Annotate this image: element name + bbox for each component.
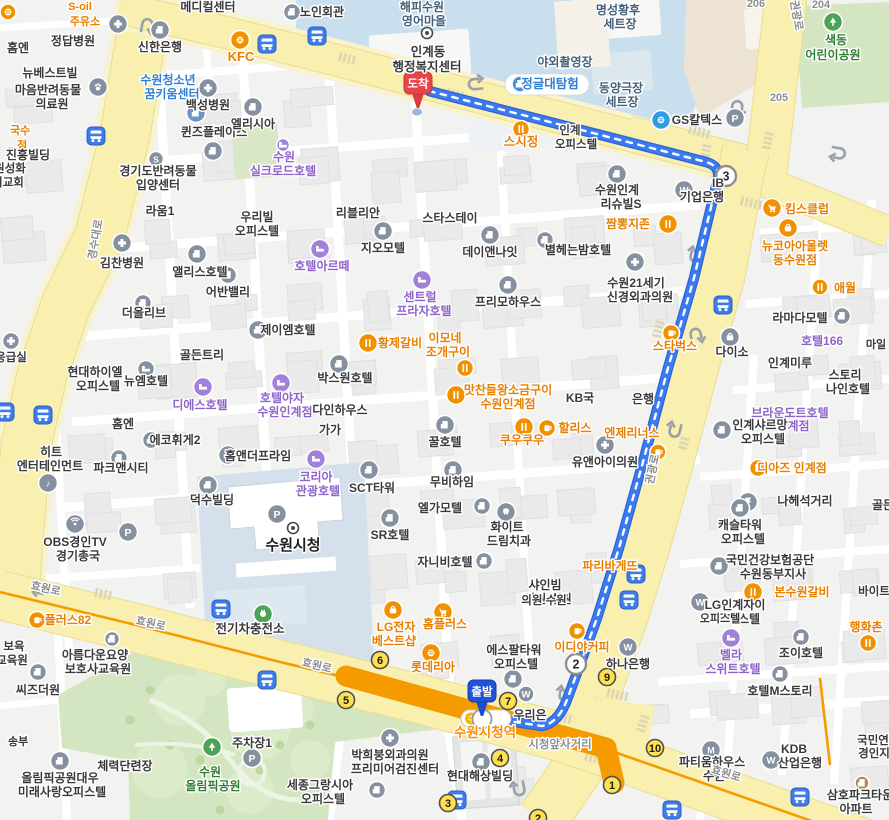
- svg-text:인계샤르망: 인계샤르망: [732, 417, 787, 432]
- svg-text:P: P: [124, 527, 131, 539]
- svg-text:이모네: 이모네: [428, 330, 461, 345]
- svg-text:박스원호텔: 박스원호텔: [317, 370, 372, 385]
- svg-text:엘가모텔: 엘가모텔: [418, 500, 462, 515]
- svg-text:국민연: 국민연: [857, 733, 889, 747]
- svg-text:입양센터: 입양센터: [136, 177, 180, 192]
- svg-text:센트럴: 센트럴: [403, 289, 436, 304]
- svg-text:조개구이: 조개구이: [426, 344, 470, 359]
- svg-text:수원21세기: 수원21세기: [607, 275, 665, 290]
- svg-text:P: P: [731, 113, 738, 125]
- svg-text:라마다모텔: 라마다모텔: [772, 310, 827, 325]
- svg-text:보육: 보육: [3, 640, 25, 653]
- svg-text:황제갈비: 황제갈비: [378, 335, 422, 350]
- svg-text:7: 7: [505, 696, 511, 708]
- svg-text:엘리시아: 엘리시아: [231, 116, 275, 131]
- svg-text:애월: 애월: [834, 280, 856, 295]
- svg-text:할리스: 할리스: [558, 420, 591, 435]
- svg-text:KB국: KB국: [566, 391, 594, 405]
- svg-text:올림픽공원: 올림픽공원: [185, 778, 240, 793]
- svg-text:우리빌: 우리빌: [240, 209, 273, 224]
- svg-text:세트장: 세트장: [605, 94, 638, 109]
- svg-text:홈앤더프라임: 홈앤더프라임: [225, 448, 291, 463]
- svg-text:오피스텔: 오피스텔: [555, 137, 597, 151]
- svg-text:킴스클럽: 킴스클럽: [785, 202, 829, 216]
- svg-text:제이엠호텔: 제이엠호텔: [260, 322, 315, 337]
- svg-text:올림픽공원대우: 올림픽공원대우: [21, 770, 98, 785]
- svg-text:경기도반려동물: 경기도반려동물: [119, 163, 196, 178]
- svg-text:동수원점: 동수원점: [773, 252, 817, 267]
- svg-text:라움1: 라움1: [146, 203, 175, 218]
- svg-text:수원: 수원: [199, 765, 221, 779]
- svg-text:엔제리너스: 엔제리너스: [604, 425, 659, 440]
- svg-text:의료원: 의료원: [35, 96, 68, 111]
- svg-text:4: 4: [497, 753, 504, 765]
- svg-text:W: W: [624, 643, 633, 654]
- svg-text:KDB: KDB: [781, 742, 807, 756]
- svg-text:SCT타워: SCT타워: [349, 480, 395, 495]
- svg-text:다인하우스: 다인하우스: [312, 402, 367, 417]
- svg-text:수원청소년: 수원청소년: [140, 72, 195, 87]
- svg-text:에스팔타워: 에스팔타워: [486, 642, 541, 657]
- svg-text:주차장1: 주차장1: [232, 735, 272, 750]
- svg-text:나인호텔: 나인호텔: [826, 381, 870, 396]
- svg-text:6: 6: [377, 655, 383, 667]
- svg-text:삼호파크타운: 삼호파크타운: [827, 787, 889, 802]
- svg-text:인계미루: 인계미루: [768, 355, 812, 370]
- svg-text:교육원: 교육원: [0, 653, 28, 667]
- svg-text:전기차충전소: 전기차충전소: [215, 621, 285, 636]
- svg-text:진흥빌딩: 진흥빌딩: [6, 147, 50, 162]
- svg-text:오피스텔: 오피스텔: [235, 223, 279, 238]
- svg-text:파크앤시티: 파크앤시티: [93, 460, 148, 475]
- svg-text:미래사랑오피스텔: 미래사랑오피스텔: [18, 784, 106, 799]
- svg-text:프라자호텔: 프라자호텔: [396, 303, 451, 318]
- svg-text:히트: 히트: [40, 444, 62, 459]
- svg-text:덕수빌딩: 덕수빌딩: [190, 492, 234, 507]
- svg-text:마음반려동물: 마음반려동물: [15, 82, 81, 97]
- svg-text:캐슬타워: 캐슬타워: [718, 517, 762, 532]
- svg-text:노인회관: 노인회관: [300, 4, 344, 19]
- svg-text:5: 5: [343, 695, 349, 707]
- svg-text:조이호텔: 조이호텔: [779, 645, 823, 660]
- svg-text:무비하임: 무비하임: [430, 474, 474, 489]
- svg-text:아파트: 아파트: [839, 801, 872, 816]
- svg-text:경인지: 경인지: [858, 746, 889, 760]
- svg-text:LG인계자이: LG인계자이: [705, 597, 766, 612]
- svg-text:다이소: 다이소: [715, 344, 748, 359]
- svg-text:세종그랑시아: 세종그랑시아: [287, 777, 353, 792]
- svg-text:출발: 출발: [471, 685, 493, 699]
- svg-text:백성병원: 백성병원: [186, 97, 230, 112]
- svg-text:아름다운요양: 아름다운요양: [62, 647, 128, 662]
- svg-text:홈엔: 홈엔: [7, 40, 29, 55]
- svg-text:세트장: 세트장: [603, 16, 636, 31]
- svg-text:체력단련장: 체력단련장: [97, 758, 152, 773]
- svg-text:주유소: 주유소: [70, 15, 100, 28]
- svg-text:204: 204: [812, 0, 831, 11]
- svg-text:S: S: [153, 154, 159, 164]
- svg-text:디아즈 인계점: 디아즈 인계점: [757, 460, 827, 475]
- svg-text:맛찬들왕소금구이: 맛찬들왕소금구이: [464, 382, 552, 397]
- svg-text:수원동부지사: 수원동부지사: [740, 566, 806, 581]
- svg-text:호텔M스토리: 호텔M스토리: [747, 683, 812, 698]
- svg-text:마일: 마일: [866, 337, 886, 351]
- svg-text:드림치과: 드림치과: [487, 533, 531, 548]
- svg-text:꿀호텔: 꿀호텔: [428, 435, 461, 449]
- svg-text:어반밸리: 어반밸리: [206, 284, 250, 299]
- svg-text:오피스텔: 오피스텔: [494, 656, 538, 671]
- svg-text:오피스텔: 오피스텔: [741, 431, 785, 446]
- svg-text:뉴엠호텔: 뉴엠호텔: [124, 374, 168, 388]
- svg-text:자니비호텔: 자니비호텔: [417, 554, 472, 569]
- svg-text:나헤석거리: 나헤석거리: [777, 493, 832, 508]
- svg-text:경기총국: 경기총국: [56, 548, 100, 563]
- svg-text:지오모텔: 지오모텔: [361, 240, 405, 255]
- svg-text:호텔아르떼: 호텔아르떼: [294, 258, 349, 273]
- svg-text:신한은행: 신한은행: [138, 39, 182, 54]
- svg-text:시청앞사거리: 시청앞사거리: [528, 737, 591, 751]
- svg-text:P: P: [248, 753, 255, 765]
- svg-text:우리은: 우리은: [513, 707, 546, 722]
- svg-text:W: W: [767, 756, 776, 767]
- svg-text:리슈빌S: 리슈빌S: [600, 196, 641, 211]
- svg-text:W: W: [522, 690, 531, 701]
- svg-text:신경외과의원: 신경외과의원: [607, 289, 673, 304]
- svg-text:별헤는밤호텔: 별헤는밤호텔: [545, 242, 611, 257]
- svg-text:리교회: 리교회: [0, 175, 24, 189]
- svg-text:플러스82: 플러스82: [45, 612, 92, 627]
- svg-text:수원: 수원: [273, 150, 295, 164]
- svg-text:이디야커피: 이디야커피: [554, 639, 609, 654]
- svg-text:롯데리아: 롯데리아: [411, 659, 455, 674]
- svg-text:오피스텔: 오피스텔: [700, 611, 740, 625]
- svg-text:스타스테이: 스타스테이: [422, 210, 477, 225]
- svg-text:뉴코아아울렛: 뉴코아아울렛: [762, 238, 828, 253]
- svg-text:SR호텔: SR호텔: [371, 528, 410, 542]
- svg-text:가가: 가가: [319, 422, 341, 437]
- svg-text:GS칼텍스: GS칼텍스: [672, 112, 722, 127]
- svg-text:홈엔: 홈엔: [112, 416, 134, 431]
- svg-text:골든트리: 골든트리: [180, 347, 224, 362]
- svg-text:영어마을: 영어마을: [402, 13, 446, 28]
- svg-text:행정복지센터: 행정복지센터: [392, 59, 461, 74]
- svg-text:2: 2: [573, 657, 580, 671]
- svg-text:수원인계점: 수원인계점: [480, 396, 535, 411]
- svg-text:LG전자: LG전자: [377, 619, 416, 634]
- svg-text:원성화: 원성화: [0, 161, 26, 175]
- svg-text:정답병원: 정답병원: [51, 33, 95, 48]
- svg-text:오피스텔: 오피스텔: [301, 791, 345, 806]
- svg-text:색동: 색동: [825, 32, 847, 47]
- svg-text:실크로드호텔: 실크로드호텔: [250, 163, 316, 178]
- svg-text:현대하이엘: 현대하이엘: [67, 364, 122, 379]
- svg-text:현대해상빌딩: 현대해상빌딩: [447, 768, 513, 783]
- svg-text:화이트: 화이트: [490, 519, 523, 534]
- svg-text:10: 10: [649, 743, 661, 755]
- svg-text:명성황후: 명성황후: [596, 2, 640, 17]
- svg-text:의원 수원: 의원 수원: [521, 593, 567, 607]
- svg-text:야외촬영장: 야외촬영장: [537, 54, 592, 69]
- svg-text:코리아: 코리아: [299, 469, 332, 484]
- svg-text:3: 3: [445, 798, 451, 810]
- svg-text:디에스호텔: 디에스호텔: [172, 397, 227, 412]
- svg-text:9: 9: [604, 672, 610, 684]
- svg-text:유앤아이의원: 유앤아이의원: [572, 454, 638, 469]
- svg-text:국수: 국수: [10, 124, 30, 137]
- svg-text:수원시청역: 수원시청역: [454, 724, 516, 740]
- svg-text:정글대탐험: 정글대탐험: [521, 76, 579, 91]
- svg-text:KFC: KFC: [228, 49, 255, 64]
- svg-text:관광호텔: 관광호텔: [296, 483, 340, 498]
- svg-text:수원인계: 수원인계: [595, 182, 639, 197]
- svg-text:씨즈더원: 씨즈더원: [16, 682, 60, 697]
- svg-text:벨라: 벨라: [720, 647, 742, 662]
- svg-text:어린이공원: 어린이공원: [805, 47, 860, 62]
- svg-text:파리바게뜨: 파리바게뜨: [582, 558, 637, 573]
- svg-text:바이트: 바이트: [858, 584, 889, 598]
- svg-text:스토리: 스토리: [828, 367, 861, 382]
- svg-text:오피스텔: 오피스텔: [721, 531, 765, 546]
- svg-text:더올리브: 더올리브: [122, 305, 166, 320]
- svg-text:홈플러스: 홈플러스: [423, 616, 467, 631]
- svg-text:응급실: 응급실: [0, 350, 27, 364]
- svg-text:보호사교육원: 보호사교육원: [65, 661, 131, 676]
- svg-text:1: 1: [609, 780, 615, 792]
- svg-text:샤인빔: 샤인빔: [528, 577, 561, 592]
- svg-text:골든펠: 골든펠: [872, 497, 889, 512]
- svg-text:IB: IB: [712, 176, 724, 190]
- svg-text:리블리안: 리블리안: [336, 205, 380, 220]
- svg-text:은행: 은행: [632, 391, 654, 406]
- svg-text:♪: ♪: [46, 479, 51, 489]
- svg-text:스시정: 스시정: [504, 134, 539, 149]
- svg-text:하나은행: 하나은행: [606, 656, 650, 671]
- svg-text:김찬병원: 김찬병원: [100, 255, 144, 270]
- svg-text:호텔야자: 호텔야자: [260, 390, 304, 405]
- svg-text:206: 206: [747, 0, 765, 10]
- svg-text:행화촌: 행화촌: [849, 619, 882, 634]
- svg-text:S-oil: S-oil: [68, 1, 92, 13]
- svg-text:스타벅스: 스타벅스: [653, 338, 697, 353]
- svg-text:해피수원: 해피수원: [400, 0, 444, 14]
- svg-text:호텔166: 호텔166: [801, 334, 843, 348]
- svg-text:오피스텔: 오피스텔: [76, 378, 120, 393]
- svg-text:P: P: [273, 509, 280, 521]
- svg-text:동양극장: 동양극장: [599, 80, 643, 95]
- svg-text:송부: 송부: [8, 735, 28, 748]
- svg-text:프리모하우스: 프리모하우스: [475, 294, 541, 309]
- svg-text:데이앤나잇: 데이앤나잇: [462, 244, 517, 259]
- svg-text:2: 2: [535, 813, 541, 820]
- svg-text:산업은행: 산업은행: [778, 755, 822, 770]
- svg-text:인계동: 인계동: [411, 44, 446, 59]
- svg-text:205: 205: [770, 92, 788, 104]
- svg-text:쿠우쿠우: 쿠우쿠우: [500, 433, 544, 447]
- svg-text:도착: 도착: [407, 77, 429, 91]
- svg-text:뉴베스트빌: 뉴베스트빌: [22, 65, 77, 80]
- svg-text:메디컬센터: 메디컬센터: [180, 0, 235, 14]
- svg-text:인계: 인계: [559, 123, 580, 137]
- svg-text:스위트호텔: 스위트호텔: [705, 662, 760, 676]
- svg-text:엔터테인먼트: 엔터테인먼트: [17, 458, 83, 473]
- svg-text:짬뽕지존: 짬뽕지존: [606, 216, 650, 231]
- svg-text:W: W: [696, 598, 705, 609]
- svg-text:앨리스호텔: 앨리스호텔: [172, 264, 227, 279]
- svg-text:기업은행: 기업은행: [680, 189, 724, 204]
- svg-text:수원시청: 수원시청: [265, 537, 320, 554]
- svg-text:프리미어검진센터: 프리미어검진센터: [351, 761, 439, 776]
- svg-text:박희붕외과의원: 박희붕외과의원: [351, 747, 428, 762]
- svg-text:국민건강보험공단: 국민건강보험공단: [726, 552, 814, 567]
- svg-text:베스트샵: 베스트샵: [372, 633, 416, 648]
- svg-text:OBS경인TV: OBS경인TV: [43, 534, 106, 549]
- svg-text:본수원갈비: 본수원갈비: [774, 584, 829, 599]
- svg-text:수원인계점: 수원인계점: [257, 404, 312, 419]
- svg-text:에코휘게2: 에코휘게2: [150, 432, 201, 447]
